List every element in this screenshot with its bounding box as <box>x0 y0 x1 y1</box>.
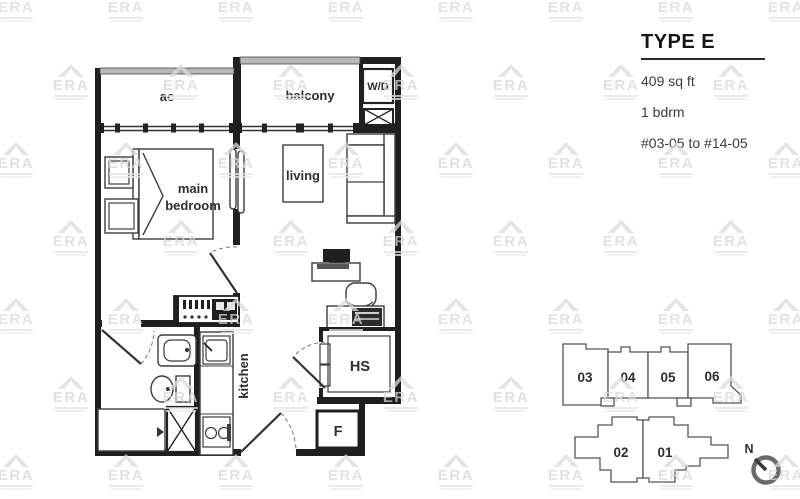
low-shelf <box>327 306 384 328</box>
living-label: living <box>286 168 320 183</box>
bathroom-door <box>102 330 154 364</box>
desk-monitor <box>323 249 350 263</box>
unit-range-text: #03-05 to #14-05 <box>641 135 765 151</box>
key-unit-02-label: 02 <box>613 445 628 460</box>
bedroom-door <box>210 247 237 293</box>
entry-door <box>241 413 296 452</box>
wd-shaft-box <box>364 109 393 125</box>
shower-area <box>98 409 165 451</box>
nightstand <box>105 157 133 188</box>
hs-label: HS <box>350 359 370 375</box>
key-unit-01-label: 01 <box>657 445 673 460</box>
key-block-tab <box>601 398 614 406</box>
plan-type-title: TYPE E <box>641 31 765 54</box>
bathroom-vanity-sink <box>158 335 196 366</box>
key-plan-top-block: 03 04 05 06 <box>563 344 741 406</box>
area-text: 409 sq ft <box>641 73 765 89</box>
key-unit-05-label: 05 <box>660 370 676 385</box>
toilet <box>151 376 190 402</box>
key-unit-04-label: 04 <box>620 370 636 385</box>
key-unit-02 <box>575 417 643 482</box>
key-plan: 03 04 05 06 02 01 N <box>563 344 779 483</box>
key-unit-03-label: 03 <box>577 370 593 385</box>
desk <box>312 263 360 281</box>
kitchen-label: kitchen <box>236 353 251 399</box>
key-unit-06-label: 06 <box>704 369 720 384</box>
chair <box>346 283 376 307</box>
key-block-tab <box>677 398 691 406</box>
bedroom-count-text: 1 bdrm <box>641 104 765 120</box>
dresser-counter <box>174 296 239 323</box>
main-bedroom-label-line1: main <box>178 181 208 196</box>
floor-plan: ac balcony W/D main bedroom living kitch… <box>95 57 401 456</box>
parapet-walls <box>100 57 360 74</box>
bathroom-shaft-box <box>167 407 196 452</box>
washer-dryer-label: W/D <box>367 81 388 93</box>
title-block: TYPE E 409 sq ft 1 bdrm #03-05 to #14-05 <box>641 31 765 151</box>
key-plan-bottom-block: 02 01 <box>575 417 728 482</box>
ac-label: ac <box>160 89 174 104</box>
north-label: N <box>744 442 753 456</box>
sliding-door-panels <box>230 149 244 213</box>
floor-plan-page: ERA ERA ERA ERA ERA ERA <box>0 0 800 499</box>
windows <box>104 124 353 133</box>
fridge-label: F <box>334 424 343 440</box>
main-bedroom-label-line2: bedroom <box>165 198 221 213</box>
key-unit-01 <box>643 417 728 482</box>
sofa <box>347 134 395 223</box>
title-underline <box>641 58 765 60</box>
nightstand <box>105 199 138 233</box>
balcony-label: balcony <box>285 88 335 103</box>
north-compass: N <box>744 442 778 483</box>
